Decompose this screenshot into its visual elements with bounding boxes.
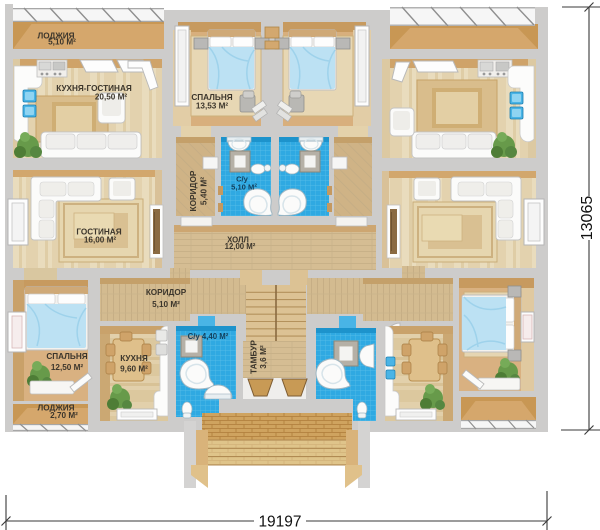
svg-text:16,00 М²: 16,00 М² bbox=[84, 236, 117, 245]
svg-text:9,60 М²: 9,60 М² bbox=[120, 365, 148, 374]
svg-text:20,50 М²: 20,50 М² bbox=[95, 93, 128, 102]
svg-text:КОРИДОР: КОРИДОР bbox=[188, 170, 198, 211]
svg-text:СПАЛЬНЯ: СПАЛЬНЯ bbox=[46, 352, 87, 361]
svg-text:КОРИДОР: КОРИДОР bbox=[146, 288, 187, 297]
svg-text:5,10 М²: 5,10 М² bbox=[231, 183, 257, 192]
svg-text:5,40 М²: 5,40 М² bbox=[199, 177, 209, 205]
svg-text:С/у 4,40 М²: С/у 4,40 М² bbox=[188, 332, 229, 341]
svg-text:19197: 19197 bbox=[258, 514, 301, 530]
svg-text:2,70 М²: 2,70 М² bbox=[50, 411, 78, 420]
svg-text:12,50 М²: 12,50 М² bbox=[51, 363, 84, 372]
svg-text:3,6 М²: 3,6 М² bbox=[258, 345, 268, 369]
svg-text:12,00 М²: 12,00 М² bbox=[225, 242, 256, 251]
svg-text:5,10 М²: 5,10 М² bbox=[48, 38, 76, 47]
svg-text:КУХНЯ: КУХНЯ bbox=[120, 354, 148, 363]
svg-text:13,53 М²: 13,53 М² bbox=[196, 102, 229, 111]
svg-text:ТАМБУР: ТАМБУР bbox=[249, 340, 259, 374]
svg-text:5,10 М²: 5,10 М² bbox=[152, 300, 180, 309]
svg-text:13065: 13065 bbox=[579, 196, 596, 241]
